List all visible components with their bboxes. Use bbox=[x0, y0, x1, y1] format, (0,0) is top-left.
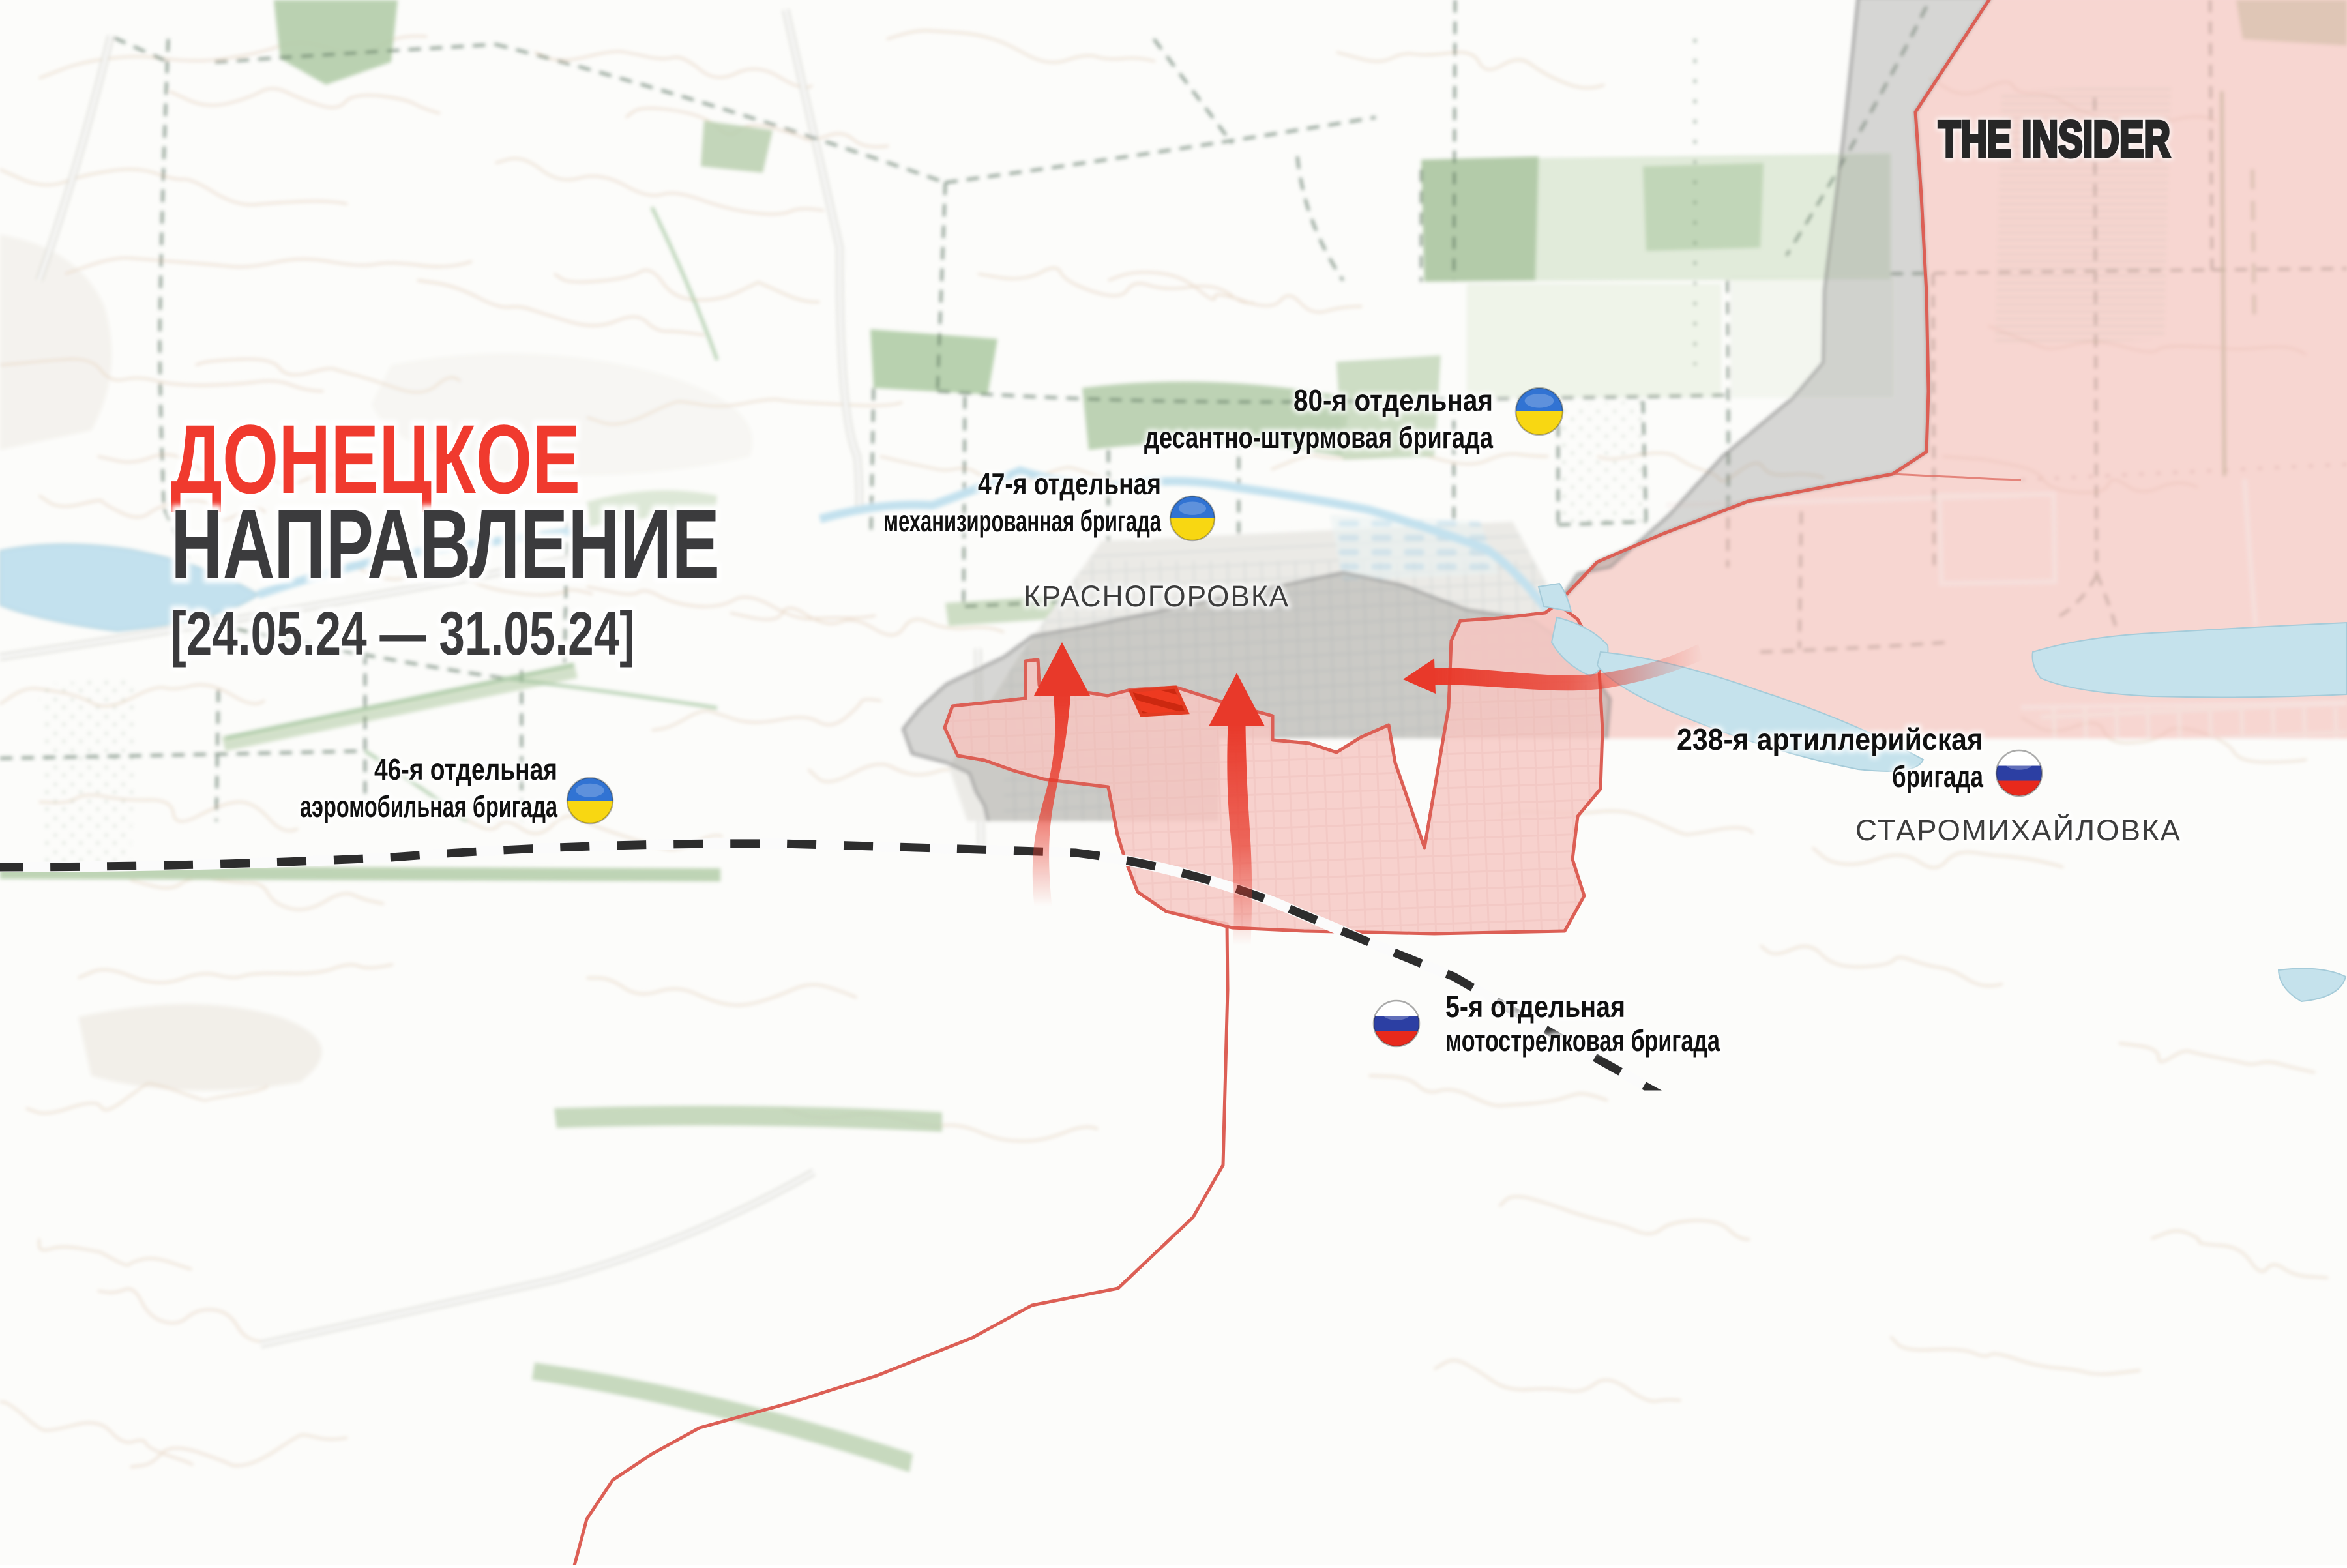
svg-text:47-я отдельная: 47-я отдельная bbox=[978, 467, 1161, 501]
svg-text:80-я отдельная: 80-я отдельная bbox=[1293, 383, 1493, 417]
svg-text:46-я отдельная: 46-я отдельная bbox=[374, 752, 557, 786]
svg-text:НАПРАВЛЕНИЕ: НАПРАВЛЕНИЕ bbox=[171, 489, 720, 599]
svg-text:ГЕОРГИЕВКА: ГЕОРГИЕВКА bbox=[318, 1375, 518, 1410]
svg-text:бригада: бригада bbox=[1892, 760, 1983, 793]
svg-text:СТАРОМИХАЙЛОВКА: СТАРОМИХАЙЛОВКА bbox=[1855, 814, 2181, 847]
svg-text:КРАСНОГОРОВКА: КРАСНОГОРОВКА bbox=[1024, 580, 1290, 613]
svg-text:мотострелковая бригада: мотострелковая бригада bbox=[1445, 1024, 1720, 1058]
svg-text:аэромобильная бригада: аэромобильная бригада bbox=[300, 790, 557, 823]
svg-text:MilitaryLand, Інформаційний сп: MilitaryLand, Інформаційний спротив, Bla… bbox=[1578, 1447, 2238, 1478]
svg-text:механизированная бригада: механизированная бригада bbox=[883, 504, 1161, 538]
svg-text:5-я отдельная: 5-я отдельная bbox=[1445, 990, 1625, 1024]
svg-text:[24.05.24 — 31.05.24]: [24.05.24 — 31.05.24] bbox=[171, 599, 635, 668]
svg-text:Источники: DeepState, Ukraine: Источники: DeepState, Ukraine Control Ma… bbox=[1578, 1410, 2283, 1441]
svg-text:десантно-штурмовая бригада: десантно-штурмовая бригада bbox=[1144, 421, 1493, 454]
svg-text:238-я артиллерийская: 238-я артиллерийская bbox=[1677, 722, 1983, 756]
svg-text:THE INSIDER: THE INSIDER bbox=[1938, 110, 2170, 168]
